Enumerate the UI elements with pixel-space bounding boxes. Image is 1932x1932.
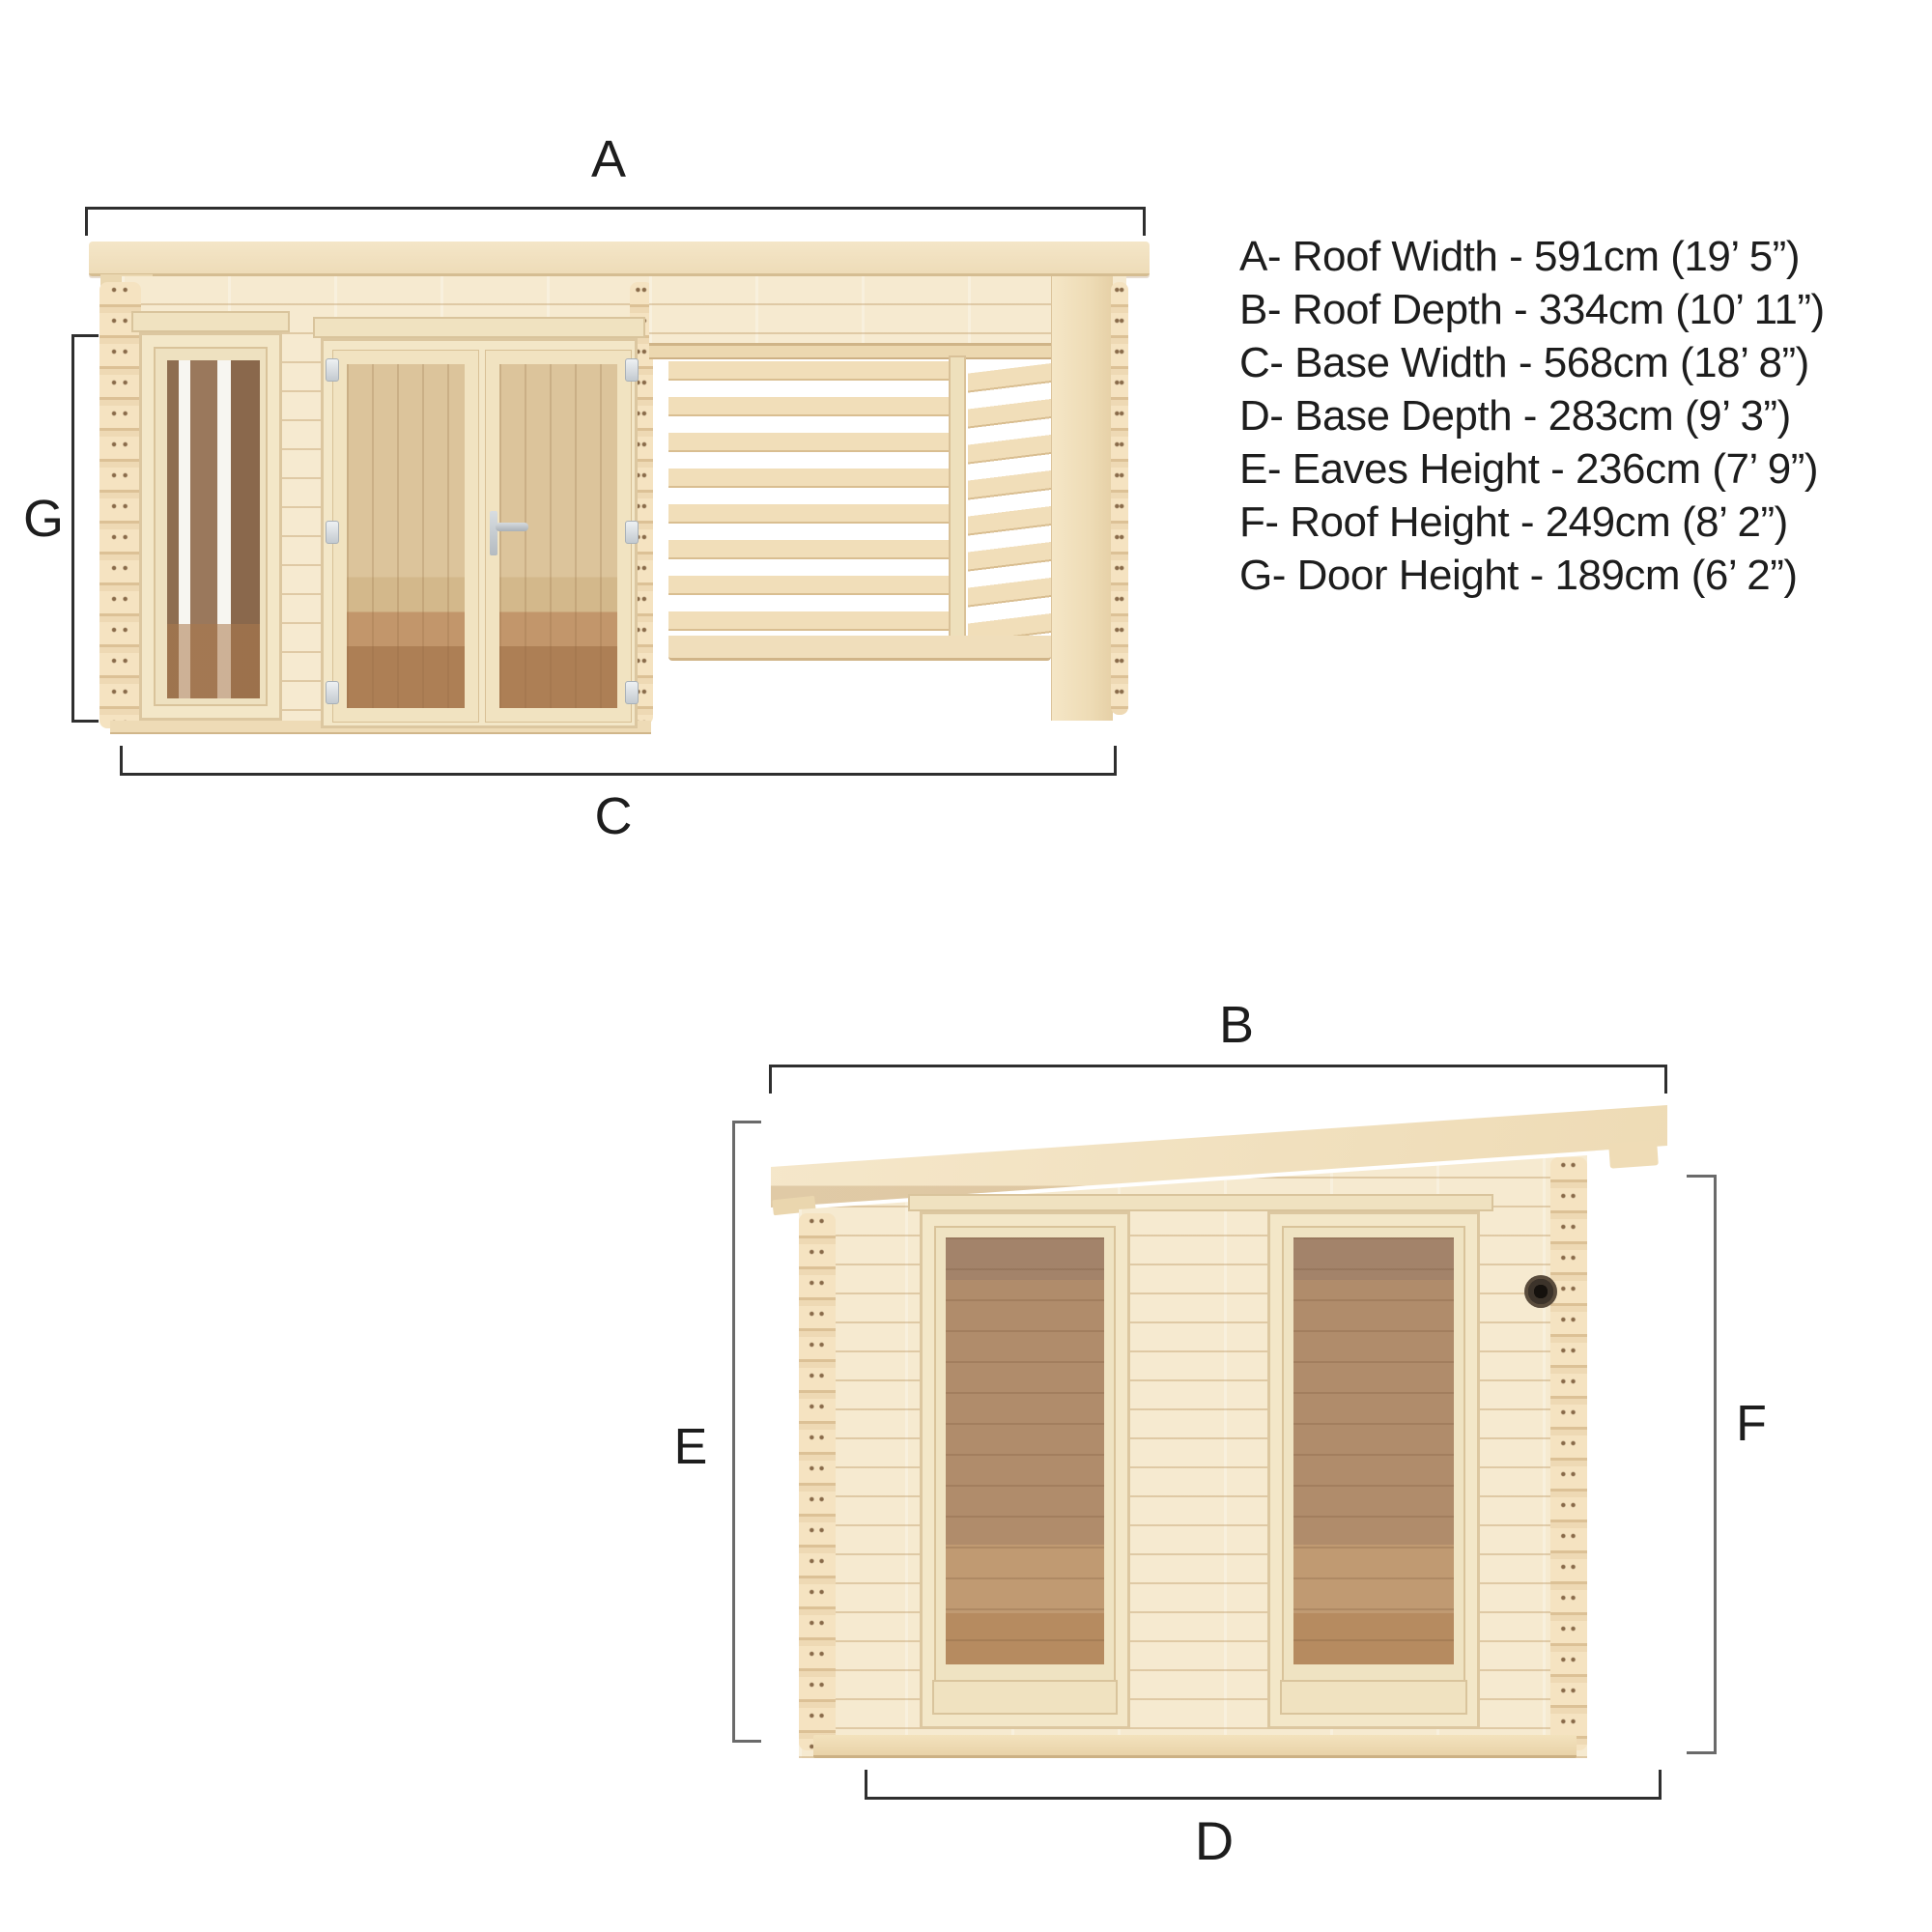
legend-line-roof-width: A- Roof Width - 591cm (19’ 5”)	[1239, 230, 1916, 283]
front-window-glass	[167, 360, 260, 698]
dim-tick	[1114, 746, 1117, 776]
dim-label-base-width: C	[587, 790, 639, 842]
dim-tick	[732, 1121, 761, 1123]
dim-line-eaves-height	[732, 1121, 735, 1743]
dim-tick	[1143, 207, 1146, 236]
door-hinge-icon	[326, 681, 339, 704]
front-door-leaf-right	[486, 351, 631, 722]
front-door-leaf-left	[333, 351, 478, 722]
front-double-doors	[321, 338, 638, 728]
front-window	[139, 332, 282, 721]
dim-line-base-depth	[865, 1797, 1662, 1800]
front-left-log-corner	[99, 282, 141, 728]
dim-label-roof-height: F	[1725, 1399, 1777, 1449]
dim-label-roof-width: A	[582, 133, 635, 185]
legend-line-roof-depth: B- Roof Depth - 334cm (10’ 11”)	[1239, 283, 1916, 336]
dim-label-door-height: G	[17, 493, 70, 545]
dim-label-roof-depth: B	[1210, 999, 1263, 1051]
legend-line-roof-height: F- Roof Height - 249cm (8’ 2”)	[1239, 496, 1916, 549]
side-window-sill	[932, 1680, 1118, 1715]
front-door-head-trim	[313, 317, 645, 338]
pergola-corner-stile	[949, 355, 966, 657]
door-handle-plate	[490, 511, 497, 555]
side-base	[813, 1735, 1577, 1758]
dim-line-base-width	[120, 773, 1117, 776]
side-roof-corbel	[1608, 1140, 1659, 1168]
dim-tick	[85, 207, 88, 236]
legend-line-eaves-height: E- Eaves Height - 236cm (7’ 9”)	[1239, 442, 1916, 496]
dim-tick	[71, 334, 99, 337]
front-roof	[89, 241, 1150, 276]
dim-tick	[1687, 1175, 1717, 1178]
legend-line-door-height: G- Door Height - 189cm (6’ 2”)	[1239, 549, 1916, 602]
legend-line-base-width: C- Base Width - 568cm (18’ 8”)	[1239, 336, 1916, 389]
dim-line-door-height	[71, 334, 74, 723]
door-hinge-icon	[326, 521, 339, 544]
front-window-head-trim	[131, 311, 290, 332]
door-hinge-icon	[326, 358, 339, 382]
side-window-glass	[1293, 1237, 1454, 1664]
roof-vent-icon	[1524, 1275, 1557, 1308]
side-right-log-corner	[1550, 1157, 1587, 1750]
dim-label-base-depth: D	[1186, 1814, 1242, 1868]
dim-line-roof-depth	[769, 1065, 1667, 1067]
pergola-back-slats	[668, 361, 949, 639]
dim-line-roof-height	[1714, 1175, 1717, 1754]
dim-label-eaves-height: E	[665, 1422, 717, 1472]
door-handle-icon	[496, 523, 528, 531]
pergola-bottom-rail	[668, 636, 1051, 661]
dim-tick	[769, 1065, 772, 1094]
dim-tick	[1659, 1770, 1662, 1800]
pergola-side-slats	[968, 363, 1051, 656]
side-window-left	[920, 1211, 1130, 1729]
dim-tick	[865, 1770, 867, 1800]
door-hinge-icon	[625, 521, 639, 544]
dim-tick	[71, 720, 99, 723]
dim-line-roof-width	[85, 207, 1146, 210]
side-window-sill	[1280, 1680, 1467, 1715]
dim-tick	[1664, 1065, 1667, 1094]
dimension-legend: A- Roof Width - 591cm (19’ 5”) B- Roof D…	[1239, 230, 1916, 602]
door-hinge-icon	[625, 358, 639, 382]
pergola-corner-post	[1051, 276, 1113, 721]
pergola-post-log-ends	[1111, 282, 1128, 715]
dim-tick	[1687, 1751, 1717, 1754]
door-hinge-icon	[625, 681, 639, 704]
dim-tick	[120, 746, 123, 776]
dimension-diagram: A C G A- Roo	[0, 0, 1932, 1932]
side-window-head-trim	[908, 1194, 1493, 1211]
legend-line-base-depth: D- Base Depth - 283cm (9’ 3”)	[1239, 389, 1916, 442]
dim-tick	[732, 1740, 761, 1743]
side-window-right	[1267, 1211, 1480, 1729]
side-window-glass	[946, 1237, 1104, 1664]
side-left-log-corner	[799, 1213, 836, 1750]
